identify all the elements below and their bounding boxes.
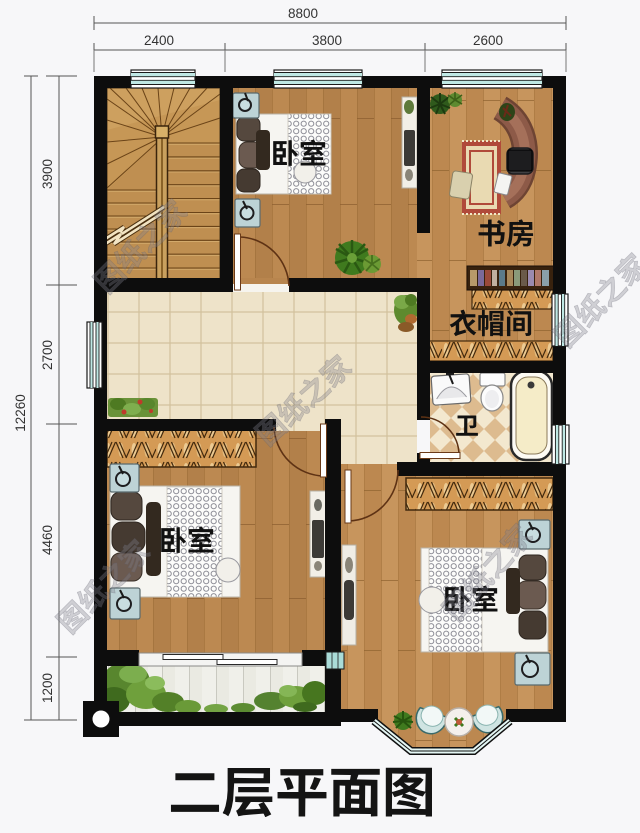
svg-text:4460: 4460 — [40, 525, 55, 555]
svg-text:1200: 1200 — [40, 673, 55, 703]
svg-text:8800: 8800 — [288, 6, 318, 21]
svg-text:3900: 3900 — [40, 159, 55, 189]
svg-text:2400: 2400 — [144, 33, 174, 48]
svg-text:12260: 12260 — [13, 394, 28, 432]
svg-text:2600: 2600 — [473, 33, 503, 48]
svg-text:3800: 3800 — [312, 33, 342, 48]
svg-text:2700: 2700 — [40, 340, 55, 370]
